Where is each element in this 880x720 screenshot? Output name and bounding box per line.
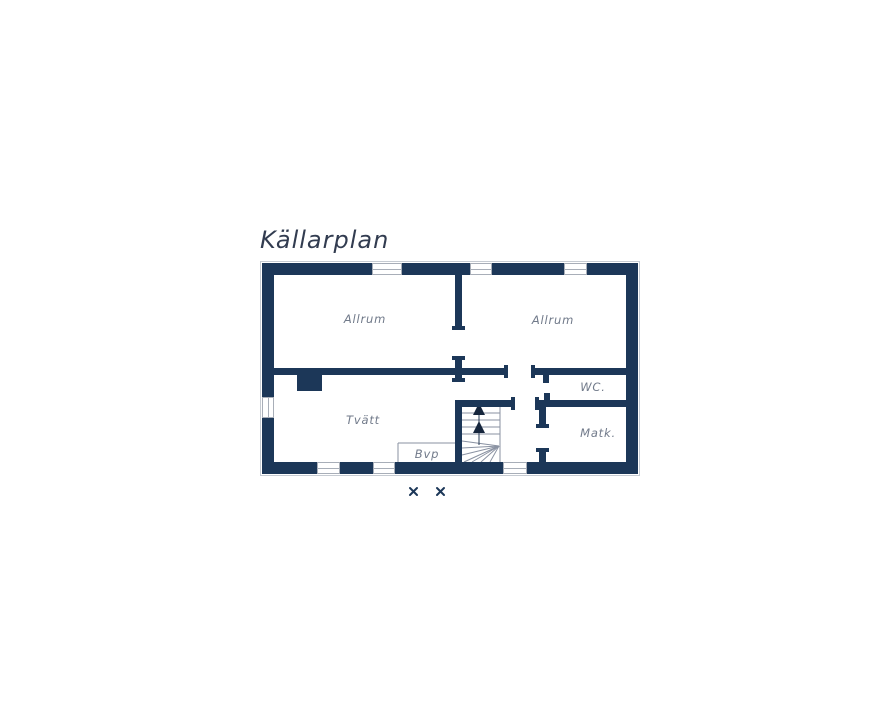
door-jamb [504, 365, 508, 378]
door-jamb [452, 378, 465, 382]
chimney-block [297, 368, 322, 391]
window-icon [564, 263, 587, 275]
wall-right [626, 263, 638, 474]
stair-winder-fan [462, 441, 499, 462]
room-label-tvatt: Tvätt [346, 413, 380, 427]
room-label-matk: Matk. [580, 426, 616, 440]
door-jamb [452, 326, 465, 330]
window-icon [262, 397, 274, 418]
door-jamb [531, 365, 535, 378]
door-jamb [536, 448, 549, 452]
wall-allrum-divider [455, 275, 462, 329]
wall-left [262, 263, 274, 474]
wall-stair-top [462, 400, 515, 407]
floor-plan-title: Källarplan [260, 226, 389, 254]
door-jamb [452, 356, 465, 360]
room-label-bvp: Bvp [415, 447, 439, 461]
ground-marks [410, 488, 444, 495]
door-jamb [511, 397, 515, 410]
door-jamb [543, 375, 549, 383]
window-icon [317, 462, 340, 474]
window-icon [470, 263, 492, 275]
window-icon [373, 462, 395, 474]
door-jamb [536, 424, 549, 428]
room-label-allrum-left: Allrum [344, 312, 386, 326]
window-icon [372, 263, 402, 275]
wall-middle-right [531, 368, 626, 375]
stair-treads [462, 413, 500, 434]
door-jamb [544, 393, 550, 400]
room-label-allrum-right: Allrum [532, 313, 574, 327]
floor-plan-page: Källarplan [0, 0, 880, 720]
wall-stair-left [455, 400, 462, 462]
window-icon [503, 462, 527, 474]
room-label-wc: WC. [580, 380, 605, 394]
wall-lower-right [535, 400, 626, 407]
plan-linework [0, 0, 880, 720]
stair-up-arrow [473, 403, 485, 445]
